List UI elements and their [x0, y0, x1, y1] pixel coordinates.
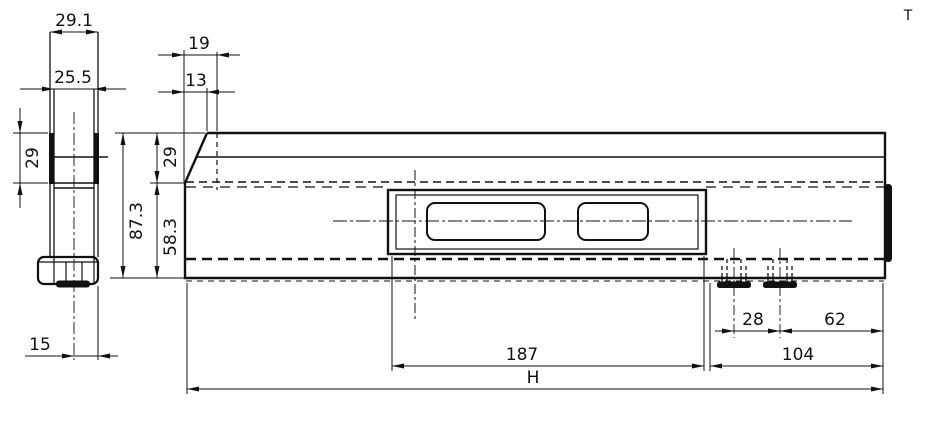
- dim-text-total-height: 87.3: [127, 202, 147, 240]
- dim-overall-length: H: [187, 283, 883, 394]
- technical-drawing-canvas: 29.1 25.5 29 15: [0, 0, 944, 430]
- dim-text-foot-pitch: 28: [742, 310, 764, 330]
- dim-text-upper-height: 29: [23, 147, 43, 169]
- dim-text-inner-width: 25.5: [54, 68, 92, 88]
- mounting-foot-2: [763, 248, 797, 338]
- foot-pad: [763, 282, 797, 289]
- cutout-large: [427, 203, 545, 240]
- end-view-internal-lines: [50, 157, 108, 188]
- corner-mark: T: [903, 8, 913, 24]
- dim-text-outer-width: 29.1: [55, 11, 93, 31]
- end-seal: [885, 184, 893, 262]
- dim-chamfer-inset: 13: [158, 71, 235, 131]
- dim-text-upper-height: 29: [161, 146, 181, 168]
- dim-center-to-edge: 15: [25, 286, 118, 360]
- end-view-foot-outline: [38, 257, 98, 284]
- end-view-foot-internals: [38, 257, 98, 284]
- dim-upper-lower-heights: 29 58.3: [150, 133, 186, 278]
- dim-text-chamfer-inset: 13: [185, 71, 207, 91]
- dim-text-opening-length: 187: [506, 345, 538, 365]
- dim-text-foot-zone-length: 104: [782, 345, 814, 365]
- dim-text-overall-length: H: [527, 368, 540, 388]
- dim-foot-to-end: 62: [780, 310, 883, 334]
- dim-foot-pitch: 28: [715, 310, 780, 334]
- end-view-foot-pad: [56, 281, 90, 288]
- side-view: [185, 133, 892, 322]
- technical-drawing: 29.1 25.5 29 15: [0, 0, 944, 430]
- opening-frame-outer: [388, 190, 706, 254]
- dim-opening-length: 187: [392, 256, 704, 371]
- dim-outer-width: 29.1: [50, 11, 98, 35]
- dim-line: [392, 256, 704, 371]
- dim-line: [158, 88, 235, 131]
- dim-text-foot-to-end: 62: [824, 310, 846, 330]
- dim-foot-zone-length: 104: [710, 283, 883, 371]
- dim-text-center-to-edge: 15: [29, 335, 51, 355]
- foot-pad: [717, 282, 751, 289]
- dim-text-top-inset: 19: [188, 34, 210, 54]
- dim-inner-width: 25.5: [20, 68, 126, 92]
- dim-text-lower-height: 58.3: [161, 218, 181, 256]
- dim-end-upper-height: 29: [13, 108, 48, 208]
- cutout-small: [578, 203, 648, 240]
